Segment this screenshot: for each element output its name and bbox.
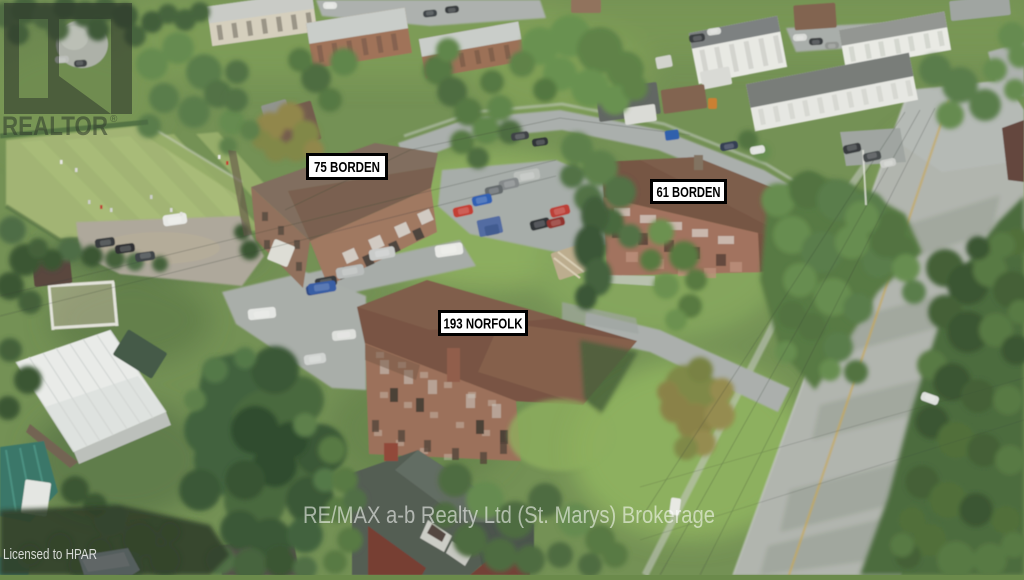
svg-text:RE/MAX a-b Realty Ltd (St. Mar: RE/MAX a-b Realty Ltd (St. Marys) Broker…	[303, 502, 715, 529]
svg-text:REALTOR: REALTOR	[2, 111, 108, 141]
svg-text:®: ®	[110, 114, 118, 125]
svg-text:75 BORDEN: 75 BORDEN	[314, 159, 380, 176]
svg-text:Licensed to HPAR: Licensed to HPAR	[3, 546, 97, 563]
svg-text:61 BORDEN: 61 BORDEN	[657, 184, 721, 201]
svg-text:193 NORFOLK: 193 NORFOLK	[444, 316, 523, 333]
